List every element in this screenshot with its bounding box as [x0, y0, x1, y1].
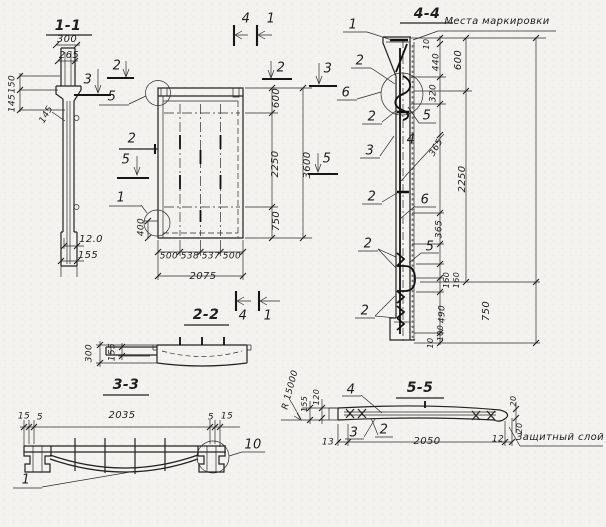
protective-layer-note: Защитный слой — [516, 433, 604, 443]
section-2-2-title: 2-2 — [193, 308, 220, 322]
dim-label: 2250 — [271, 150, 281, 177]
dim-label: 120 — [313, 389, 321, 405]
dim-label: 750 — [482, 301, 492, 321]
dim-label: 155 — [78, 251, 98, 261]
callout-label: 2 — [364, 238, 373, 251]
section-cut-label: 2 — [128, 133, 137, 146]
dim-label: 600 — [454, 50, 464, 70]
dim-label: 12 — [492, 436, 504, 445]
callout-label: 5 — [426, 241, 435, 254]
callout-label: 2 — [361, 305, 370, 318]
callout-label: 4 — [347, 384, 356, 397]
callout-label: 2 — [368, 111, 377, 124]
callout-label: 6 — [421, 194, 430, 207]
dim-label: 537 — [202, 253, 220, 262]
callout-label: 5 — [423, 110, 432, 123]
dim-label: 150 — [9, 75, 18, 93]
callout-label: 1 — [22, 474, 31, 487]
dim-label: 100 — [437, 325, 445, 341]
dim-label: 145 — [9, 94, 18, 112]
dim-label: 160 — [453, 272, 461, 288]
marking-note: Места маркировки — [444, 17, 549, 27]
section-cut-label: 4 — [239, 310, 248, 323]
dim-label: 12.0 — [79, 235, 103, 245]
dim-label: 300 — [57, 35, 77, 45]
section-cut-label: 2 — [113, 60, 122, 73]
section-cut-label: 4 — [242, 13, 251, 26]
section-2-2-linework — [96, 325, 251, 367]
dim-label: 440 — [433, 53, 442, 71]
section-3-3-linework — [13, 395, 265, 488]
section-4-4-title: 4-4 — [414, 7, 441, 21]
callout-label: 2 — [356, 55, 365, 68]
dim-label: 750 — [272, 211, 282, 231]
callout-label: 1 — [349, 19, 358, 32]
section-cut-label: 1 — [264, 310, 273, 323]
dim-label: 490 — [439, 305, 448, 323]
dim-label: 155 — [301, 396, 309, 412]
dim-label: 600 — [272, 88, 282, 108]
dim-label: 400 — [138, 218, 147, 236]
callout-label: 2 — [368, 191, 377, 204]
dim-label: 13 — [322, 439, 334, 448]
dim-label: 365 — [436, 220, 445, 238]
section-4-4-linework — [337, 23, 556, 346]
section-cut-label: 2 — [277, 62, 286, 75]
dim-label: 500 — [160, 253, 178, 262]
dim-label: 5 — [208, 414, 214, 423]
section-5-5-title: 5-5 — [407, 381, 434, 395]
dim-label: 538 — [181, 253, 199, 262]
detail-ref-label: 10 — [244, 439, 261, 452]
dim-label: 320 — [430, 84, 439, 102]
dim-label: 15 — [221, 413, 233, 422]
section-cut-label: 5 — [122, 154, 131, 167]
dim-label: 2050 — [413, 437, 440, 447]
callout-label: 3 — [366, 145, 375, 158]
detail-ref-label: 5 — [108, 91, 117, 104]
dim-label: 155 — [109, 343, 118, 361]
callout-label: 2 — [380, 424, 389, 437]
dim-label: 300 — [86, 344, 95, 362]
section-cut-label: 1 — [267, 13, 276, 26]
dim-label: 20 — [510, 396, 518, 407]
section-cut-label: 3 — [324, 63, 333, 76]
dim-label: 500 — [223, 253, 241, 262]
dim-label: 10 — [427, 338, 435, 349]
dim-label: 3600 — [303, 151, 313, 178]
dim-label: 15 — [18, 413, 30, 422]
section-1-1-title: 1-1 — [55, 19, 82, 33]
dim-label: 2075 — [189, 272, 216, 282]
dim-label: 10 — [423, 39, 431, 50]
dim-label: 265 — [59, 51, 79, 61]
callout-label: 3 — [350, 427, 359, 440]
dim-label: 5 — [37, 414, 43, 423]
detail-ref-label: 1 — [117, 192, 126, 205]
dim-label: 2250 — [458, 165, 468, 192]
section-cut-label: 3 — [84, 74, 93, 87]
callout-label: 4 — [407, 134, 416, 147]
dim-label: 2035 — [108, 411, 135, 421]
drawing-sheet: 1-1 300 265 150 145 145 12.0 155 4 1 4 1… — [0, 0, 606, 527]
section-3-3-title: 3-3 — [113, 378, 140, 392]
section-cut-label: 5 — [323, 153, 332, 166]
dim-label: 160 — [443, 272, 451, 288]
callout-label: 6 — [342, 87, 351, 100]
